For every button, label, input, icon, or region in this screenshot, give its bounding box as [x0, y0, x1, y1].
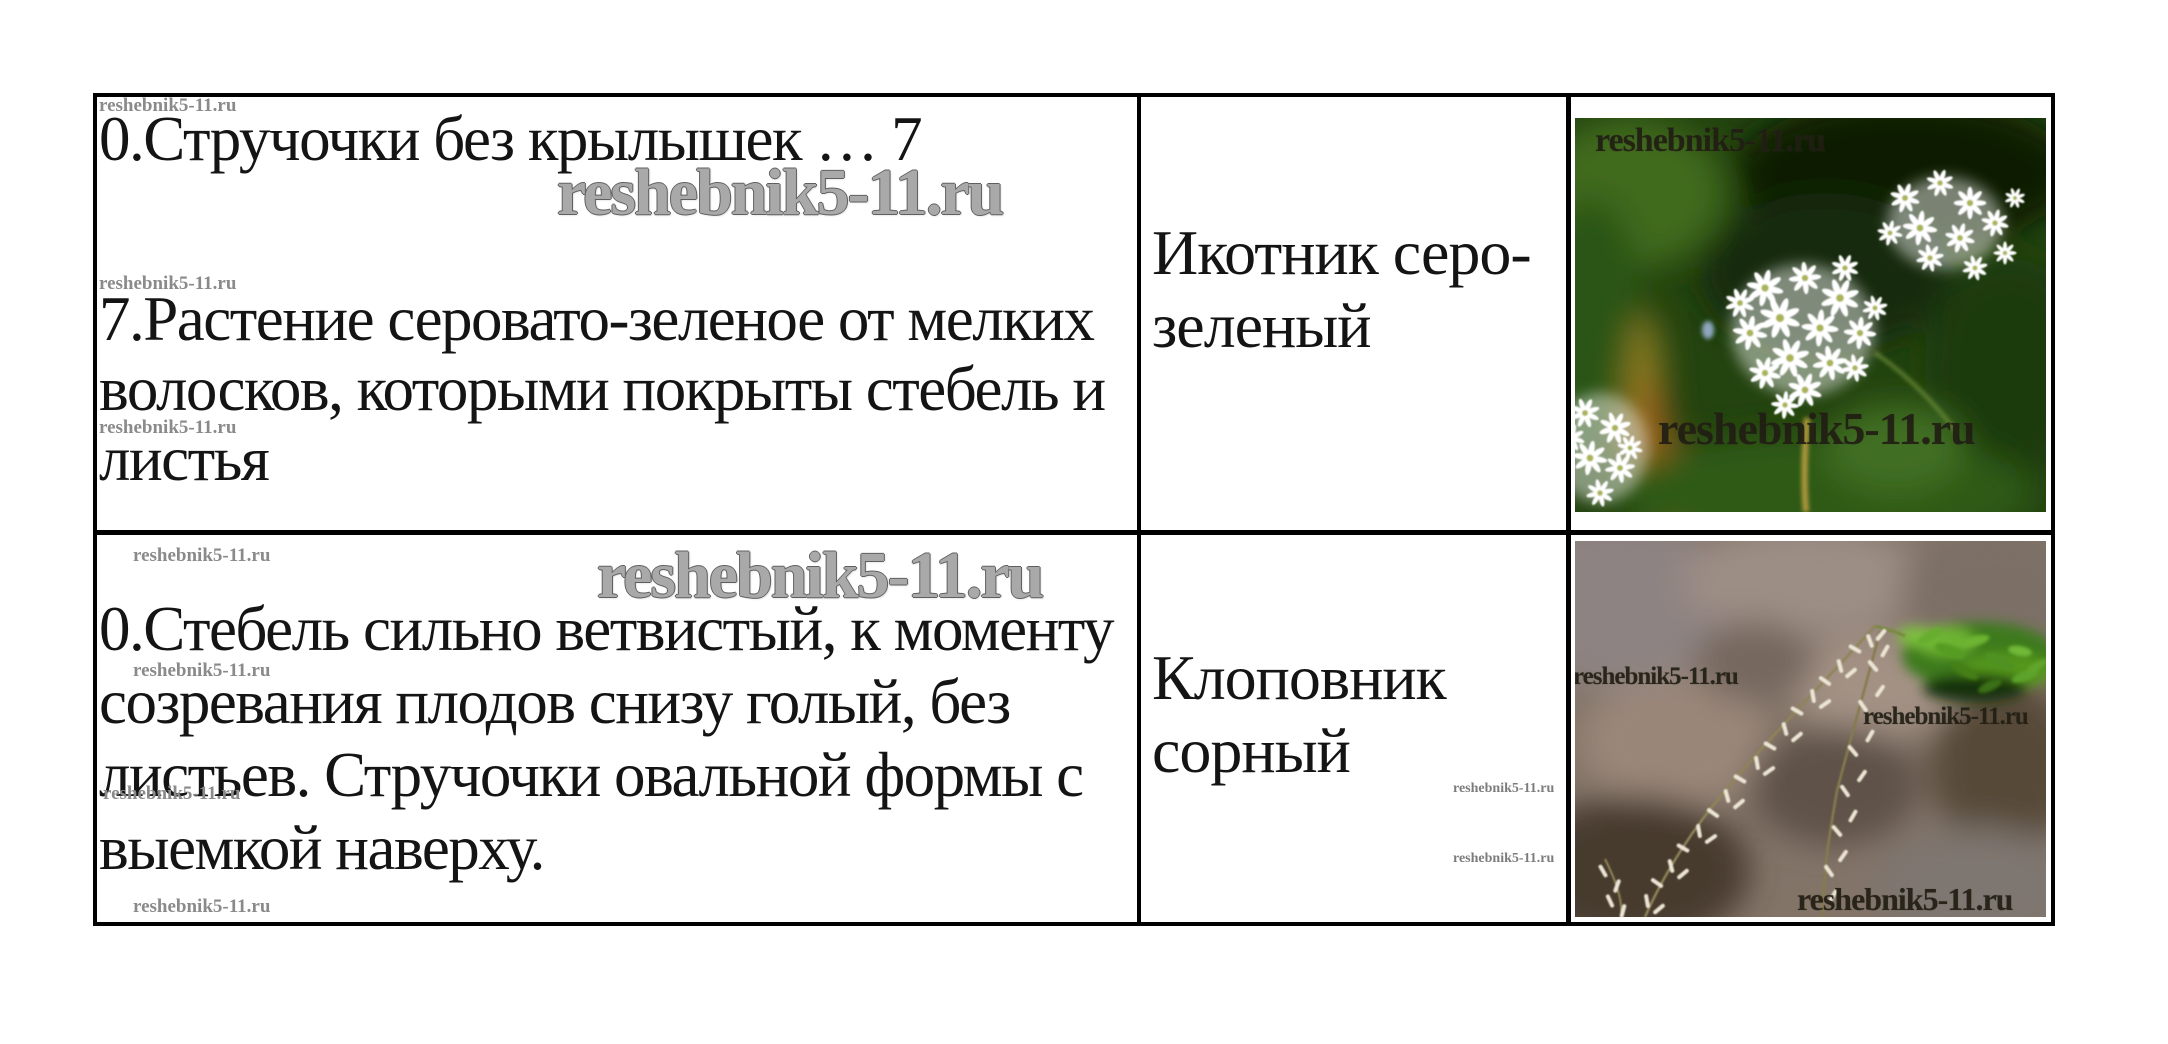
- plant-photo-ikotnik: reshebnik5-11.ru reshebnik5-11.ru: [1575, 118, 2046, 512]
- photo-watermark: reshebnik5-11.ru: [1863, 703, 2028, 731]
- watermark-small: reshebnik5-11.ru: [133, 545, 270, 567]
- plant-name-line: Клоповник: [1152, 641, 1446, 714]
- plant-name-line: сорный: [1152, 714, 1350, 787]
- plant-name-cell-row2: Клоповник сорный reshebnik5-11.ru resheb…: [1141, 535, 1566, 922]
- key-line: листьев. Стручочки овальной формы с: [99, 739, 1083, 812]
- key-line: созревания плодов снизу голый, без: [99, 666, 1010, 739]
- key-cell-row1: reshebnik5-11.ru 0.Стручочки без крылыше…: [97, 97, 1137, 530]
- key-line: 7.Растение серовато-зеленое от мелких: [99, 284, 1093, 354]
- key-line: волосков, которыми покрыты стебель и: [99, 354, 1105, 424]
- watermark-tiny: reshebnik5-11.ru: [1453, 851, 1554, 867]
- photo-watermark: reshebnik5-11.ru: [1797, 881, 2012, 917]
- photo-watermark: reshebnik5-11.ru: [1575, 663, 1738, 691]
- watermark-small: reshebnik5-11.ru: [103, 783, 240, 805]
- plant-name-cell-row1: Икотник серо- зеленый: [1141, 97, 1566, 530]
- photo-cell-row2: reshebnik5-11.ru reshebnik5-11.ru resheb…: [1571, 535, 2051, 922]
- watermark-small: reshebnik5-11.ru: [133, 896, 270, 918]
- photo-watermark: reshebnik5-11.ru: [1595, 122, 1825, 160]
- key-line: листья: [99, 424, 268, 494]
- watermark-tiny: reshebnik5-11.ru: [1453, 781, 1554, 797]
- key-line: выемкой наверху.: [99, 812, 544, 885]
- watermark-large: reshebnik5-11.ru: [557, 155, 1002, 231]
- key-cell-row2: reshebnik5-11.ru reshebnik5-11.ru 0.Стеб…: [97, 535, 1137, 922]
- photo-cell-row1: reshebnik5-11.ru reshebnik5-11.ru: [1571, 97, 2051, 530]
- plant-name-line: Икотник серо-: [1152, 216, 1531, 289]
- plants-table: reshebnik5-11.ru 0.Стручочки без крылыше…: [93, 93, 2055, 926]
- photo-watermark: reshebnik5-11.ru: [1658, 402, 1975, 455]
- plant-name-line: зеленый: [1152, 289, 1371, 362]
- key-line: 0.Стебель сильно ветвистый, к моменту: [99, 593, 1113, 666]
- plant-photo-klopovnik: reshebnik5-11.ru reshebnik5-11.ru resheb…: [1575, 541, 2046, 917]
- table-grid: reshebnik5-11.ru 0.Стручочки без крылыше…: [97, 97, 2051, 922]
- page: { "watermark": { "text": "reshebnik5-11.…: [0, 0, 2168, 1044]
